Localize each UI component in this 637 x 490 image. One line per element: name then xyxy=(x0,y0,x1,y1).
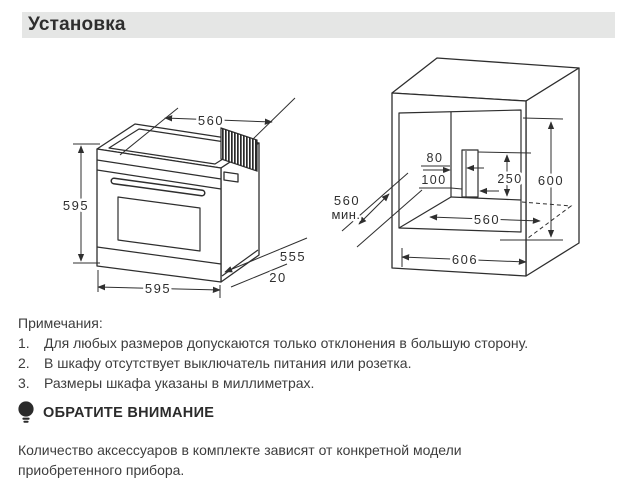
cabinet-dim-depth-min: 560 xyxy=(334,193,360,208)
list-item-number: 2. xyxy=(18,353,44,373)
oven-side-latch xyxy=(224,172,238,182)
oven-dim-top-width: 560 xyxy=(198,113,224,128)
cabinet-dim-outer-width: 606 xyxy=(452,252,478,267)
cabinet-dim-line-depth-min xyxy=(359,194,389,224)
oven-dim-depth: 555 xyxy=(280,249,306,264)
attention-callout: ОБРАТИТЕ ВНИМАНИЕ xyxy=(17,401,214,424)
notes-title: Примечания: xyxy=(18,313,528,333)
page-title: Установка xyxy=(28,14,126,36)
list-item-number: 1. xyxy=(18,333,44,353)
list-item-text: В шкафу отсутствует выключатель питания … xyxy=(44,353,411,373)
list-item: 3. Размеры шкафа указаны в миллиметрах. xyxy=(18,373,528,393)
lightbulb-icon xyxy=(17,401,35,424)
cabinet-dim-hole-top-offset: 80 xyxy=(427,151,444,165)
oven-dim-height: 595 xyxy=(63,198,89,213)
attention-body: Количество аксессуаров в комплекте завис… xyxy=(18,440,523,480)
list-item-number: 3. xyxy=(18,373,44,393)
cabinet-dim-depth-min-suffix: мин. xyxy=(332,207,361,222)
installation-diagrams: 560 595 595 555 20 xyxy=(0,50,637,308)
cabinet-diagram: 80 100 250 600 560 606 xyxy=(332,58,580,276)
oven-diagram: 560 595 595 555 20 xyxy=(63,98,307,298)
cabinet-dim-hole-height: 250 xyxy=(497,172,522,186)
list-item: 2. В шкафу отсутствует выключатель питан… xyxy=(18,353,528,373)
list-item: 1. Для любых размеров допускаются только… xyxy=(18,333,528,353)
cabinet-right-face xyxy=(526,68,579,276)
oven-dim-bottom-width: 595 xyxy=(145,281,171,296)
oven-dim-ext xyxy=(252,98,295,140)
attention-title: ОБРАТИТЕ ВНИМАНИЕ xyxy=(43,405,214,421)
cabinet-dim-hole-side-offset: 100 xyxy=(421,173,446,187)
cabinet-dim-niche-height: 600 xyxy=(538,173,564,188)
list-item-text: Для любых размеров допускаются только от… xyxy=(44,333,528,353)
cabinet-dim-niche-width: 560 xyxy=(474,212,500,227)
section-header: Установка xyxy=(22,12,615,38)
oven-dim-door-thickness: 20 xyxy=(269,270,286,285)
manual-page: Установка xyxy=(0,0,637,490)
notes-section: Примечания: 1. Для любых размеров допуск… xyxy=(18,313,528,393)
list-item-text: Размеры шкафа указаны в миллиметрах. xyxy=(44,373,314,393)
